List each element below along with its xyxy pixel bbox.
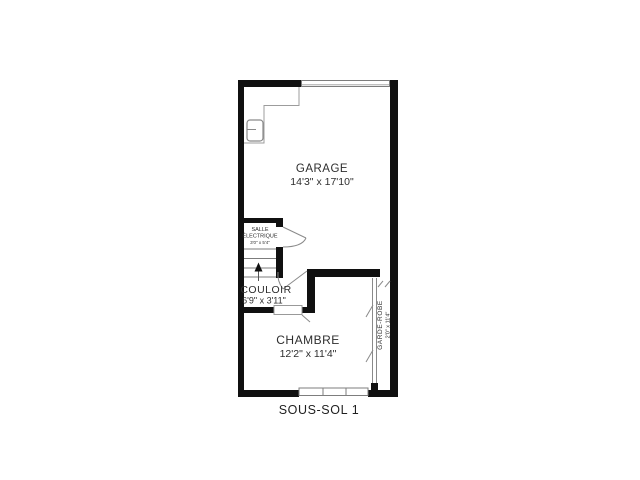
wall-right <box>390 80 398 397</box>
wall-couloir-south-left <box>240 307 274 313</box>
garage-dimensions: 14'3" x 17'10" <box>290 176 354 188</box>
garage-door <box>302 81 390 87</box>
salle-electrique-dimensions: 3'0" x 5'4" <box>250 240 270 245</box>
window-frame <box>299 388 368 396</box>
garage-label: GARAGE <box>296 163 348 175</box>
chambre-dimensions: 12'2" x 11'4" <box>280 348 337 360</box>
electrical-panel-body <box>247 120 263 141</box>
floorplan-canvas: GARAGE 14'3" x 17'10" SALLE ÉLECTRIQUE 3… <box>0 0 640 480</box>
wall-salle-top <box>240 218 282 223</box>
closet-door-tick <box>366 350 373 362</box>
stairs-up-arrow-icon <box>255 263 263 282</box>
wall-garage-chambre <box>307 269 380 277</box>
wall-chambre-northwest <box>307 277 315 308</box>
chambre-window <box>299 388 368 396</box>
door-swing-arc <box>283 238 306 247</box>
closet-label-tick <box>378 281 383 287</box>
arrow-head <box>255 263 263 272</box>
salle-electrique-label-line2: ÉLECTRIQUE <box>242 233 277 240</box>
wall-bottom-right <box>368 390 398 397</box>
wall-salle-right-upper <box>276 218 283 227</box>
chambre-label: CHAMBRE <box>276 333 340 347</box>
closet-door-tick <box>366 305 373 317</box>
opening-tick <box>302 315 310 322</box>
wall-bottom-left <box>238 390 299 397</box>
closet-label-tick <box>385 281 390 287</box>
staircase <box>244 249 276 281</box>
garde-robe-dimensions: 2'0" x 11'4" <box>386 312 392 339</box>
door-leaf <box>283 227 306 238</box>
closet-wall-stub <box>371 383 378 391</box>
garde-robe-label: GARDE-ROBE <box>377 300 384 350</box>
couloir-label: COULOIR <box>240 284 291 296</box>
couloir-dimensions: 6'9" x 3'11" <box>242 296 286 306</box>
door-salle-electrique <box>283 227 306 247</box>
wall-salle-right-lower <box>276 247 283 278</box>
electrical-panel-icon <box>247 120 263 141</box>
plan-title: SOUS-SOL 1 <box>279 403 360 417</box>
wall-couloir-south-right <box>301 307 315 313</box>
opening-casing <box>274 306 302 315</box>
garage-door-panel <box>302 81 390 87</box>
floorplan-drawing: GARAGE 14'3" x 17'10" SALLE ÉLECTRIQUE 3… <box>0 0 640 480</box>
salle-electrique-label-line1: SALLE <box>251 227 268 233</box>
wall-top-left <box>238 80 302 87</box>
